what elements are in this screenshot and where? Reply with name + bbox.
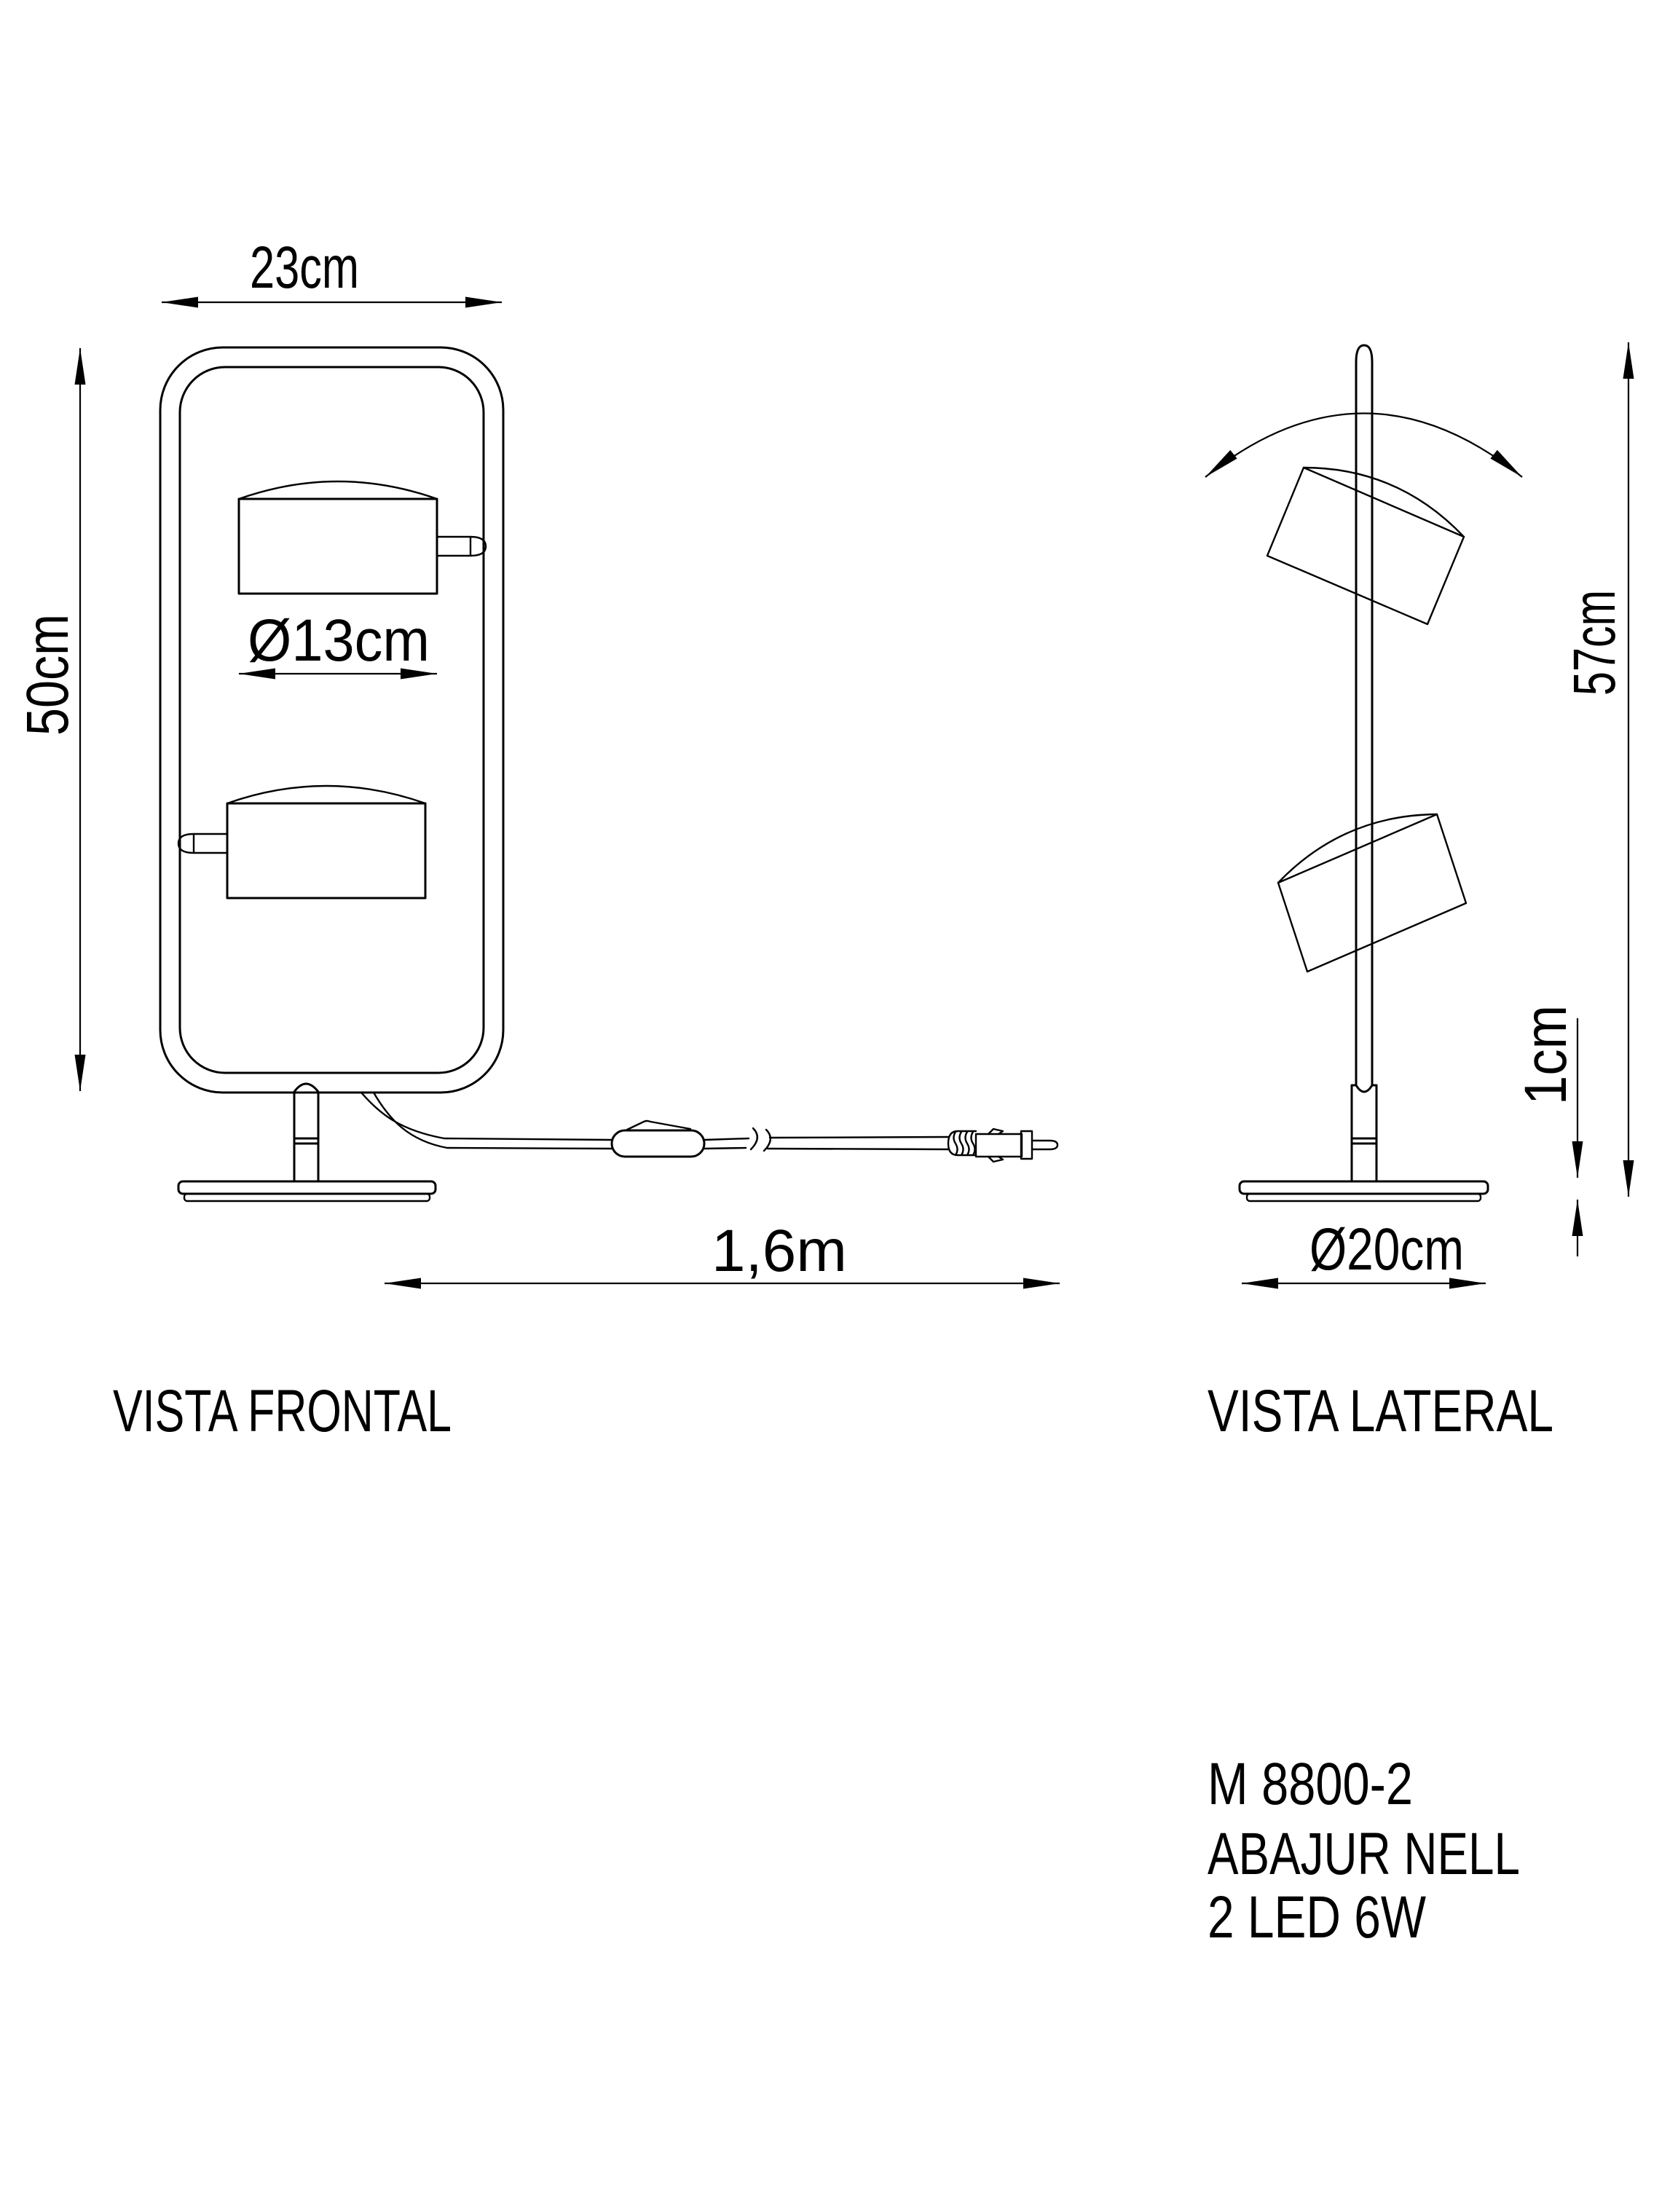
- cord-break-symbol: [751, 1128, 771, 1151]
- side-view: 57cm 1cm Ø20cm VISTA LATERAL: [1205, 342, 1628, 1444]
- switch-rocker: [627, 1121, 690, 1130]
- front-frame-outer: [160, 347, 503, 1093]
- product-info: M 8800-2 ABAJUR NELL 2 LED 6W: [1208, 1751, 1520, 1951]
- inline-switch: [612, 1130, 704, 1157]
- cable-length-dimension-label: 1,6m: [712, 1218, 847, 1284]
- plug-boot: [948, 1131, 976, 1155]
- drawing-page: 23cm 50cm Ø13cm 1,6m VISTA FRONTAL 57cm …: [0, 0, 1678, 2212]
- side-upper-shade: [1267, 468, 1464, 624]
- plug-flange: [1021, 1131, 1032, 1159]
- base-thickness-dimension-label: 1cm: [1513, 1005, 1579, 1105]
- front-upper-shade-dome: [239, 481, 437, 499]
- product-spec: 2 LED 6W: [1208, 1884, 1426, 1951]
- front-lower-shade-dome: [227, 786, 425, 803]
- side-base-plate: [1240, 1181, 1488, 1194]
- front-stem: [294, 1084, 318, 1181]
- front-height-dimension-label: 50cm: [15, 614, 81, 736]
- front-view-caption: VISTA FRONTAL: [113, 1378, 452, 1444]
- front-width-dimension-label: 23cm: [250, 235, 359, 301]
- power-cord: [361, 1093, 948, 1149]
- front-upper-shade-arm: [437, 537, 486, 556]
- front-upper-shade: [239, 499, 437, 594]
- technical-drawing: 23cm 50cm Ø13cm 1,6m VISTA FRONTAL 57cm …: [0, 0, 1678, 2212]
- side-stem: [1352, 1085, 1376, 1181]
- side-height-dimension-label: 57cm: [1561, 590, 1628, 696]
- front-frame-inner: [180, 367, 484, 1073]
- product-model: M 8800-2: [1208, 1751, 1413, 1817]
- side-pole: [1356, 345, 1372, 1085]
- plug-pin: [1032, 1141, 1057, 1149]
- front-lower-shade-arm: [178, 834, 227, 853]
- front-view: 23cm 50cm Ø13cm 1,6m VISTA FRONTAL: [15, 235, 1060, 1444]
- side-view-caption: VISTA LATERAL: [1208, 1378, 1553, 1444]
- base-diameter-dimension-label: Ø20cm: [1309, 1216, 1464, 1283]
- front-base-plate: [178, 1181, 436, 1194]
- front-lower-shade: [227, 803, 425, 898]
- shade-diameter-dimension-label: Ø13cm: [248, 607, 430, 674]
- swivel-arc: [1205, 414, 1522, 478]
- product-name: ABAJUR NELL: [1208, 1821, 1520, 1887]
- plug-body: [976, 1134, 1022, 1157]
